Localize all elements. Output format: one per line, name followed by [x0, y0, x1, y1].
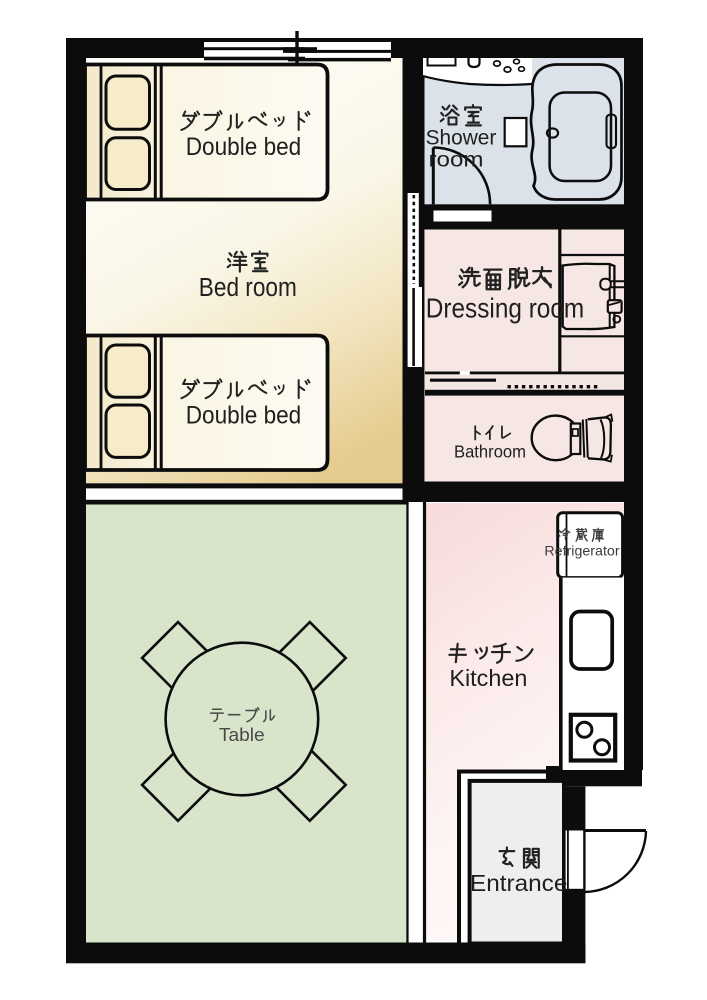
svg-text:Bathroom: Bathroom: [454, 442, 526, 462]
svg-text:Refrigerator: Refrigerator: [544, 543, 620, 559]
svg-text:Shower: Shower: [426, 127, 497, 150]
svg-text:Table: Table: [219, 725, 265, 745]
svg-text:Kitchen: Kitchen: [449, 665, 527, 691]
svg-text:Bed room: Bed room: [199, 274, 297, 302]
svg-text:Double bed: Double bed: [186, 402, 302, 430]
svg-text:Entrance: Entrance: [470, 870, 567, 896]
svg-text:room: room: [429, 149, 484, 172]
svg-text:Double bed: Double bed: [186, 133, 302, 161]
svg-text:Dressing room: Dressing room: [426, 293, 584, 324]
